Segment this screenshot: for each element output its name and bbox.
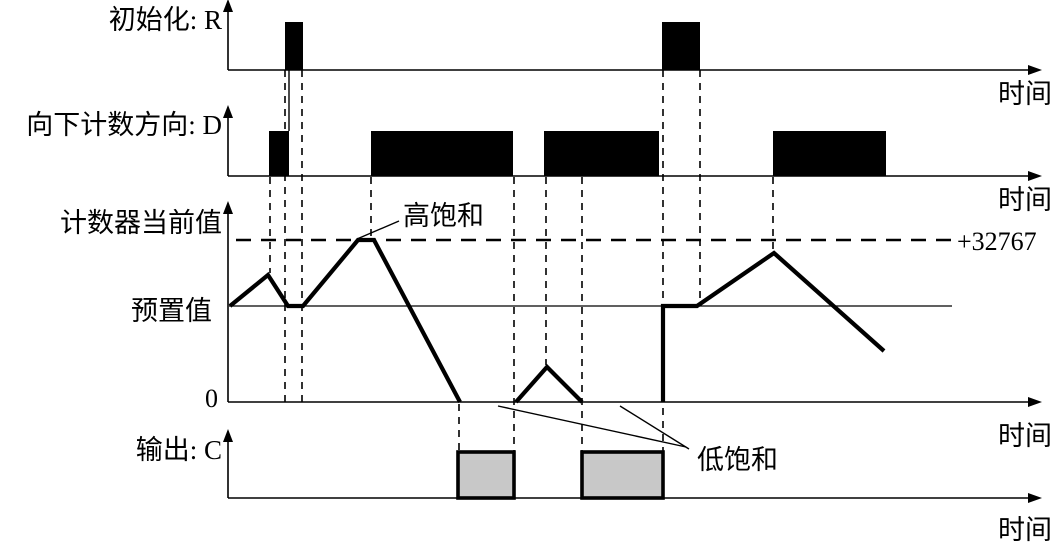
high-saturation-label: 高饱和 [403, 201, 484, 231]
time-axis-arrow-icon [1028, 65, 1042, 75]
d-pulse [371, 131, 513, 176]
value-axis-arrow-icon [223, 429, 233, 442]
output-axis-label: 输出: C [136, 435, 222, 465]
r-pulse [662, 22, 700, 70]
output-pulse [582, 452, 663, 498]
r-pulse [285, 22, 303, 70]
max-value-label: +32767 [957, 227, 1037, 256]
d-pulse [773, 131, 886, 176]
counter-axis-label: 计数器当前值 [60, 208, 222, 238]
diagram-shapes [223, 0, 1042, 503]
time-axis-arrow-icon [1028, 397, 1042, 407]
counter-value-curve [230, 240, 460, 402]
time-label-counter: 时间 [998, 421, 1052, 451]
low-saturation-pointer-line [498, 406, 686, 447]
time-label-output: 时间 [998, 515, 1052, 544]
counter-value-curve [516, 367, 582, 402]
d-axis-label: 向下计数方向: D [26, 110, 222, 140]
high-saturation-pointer-line [357, 221, 399, 239]
value-axis-arrow-icon [223, 105, 233, 118]
timing-diagram-page: 初始化: R 向下计数方向: D 计数器当前值 预置值 0 输出: C 时间 时… [0, 0, 1056, 544]
d-pulse [544, 131, 659, 176]
time-axis-arrow-icon [1028, 493, 1042, 503]
time-axis-arrow-icon [1028, 171, 1042, 181]
counter-value-curve [663, 253, 884, 402]
counter-timing-diagram: 初始化: R 向下计数方向: D 计数器当前值 预置值 0 输出: C 时间 时… [0, 0, 1056, 544]
output-pulse [458, 452, 514, 498]
time-label-d: 时间 [998, 185, 1052, 215]
value-axis-arrow-icon [223, 0, 233, 12]
preset-value-label: 预置值 [131, 296, 212, 326]
zero-tick-label: 0 [205, 384, 218, 413]
low-saturation-label: 低饱和 [697, 445, 778, 475]
time-label-r: 时间 [998, 79, 1052, 109]
low-saturation-pointer-line [620, 406, 689, 449]
value-axis-arrow-icon [223, 201, 233, 214]
r-axis-label: 初始化: R [109, 5, 222, 35]
d-pulse [269, 131, 289, 176]
